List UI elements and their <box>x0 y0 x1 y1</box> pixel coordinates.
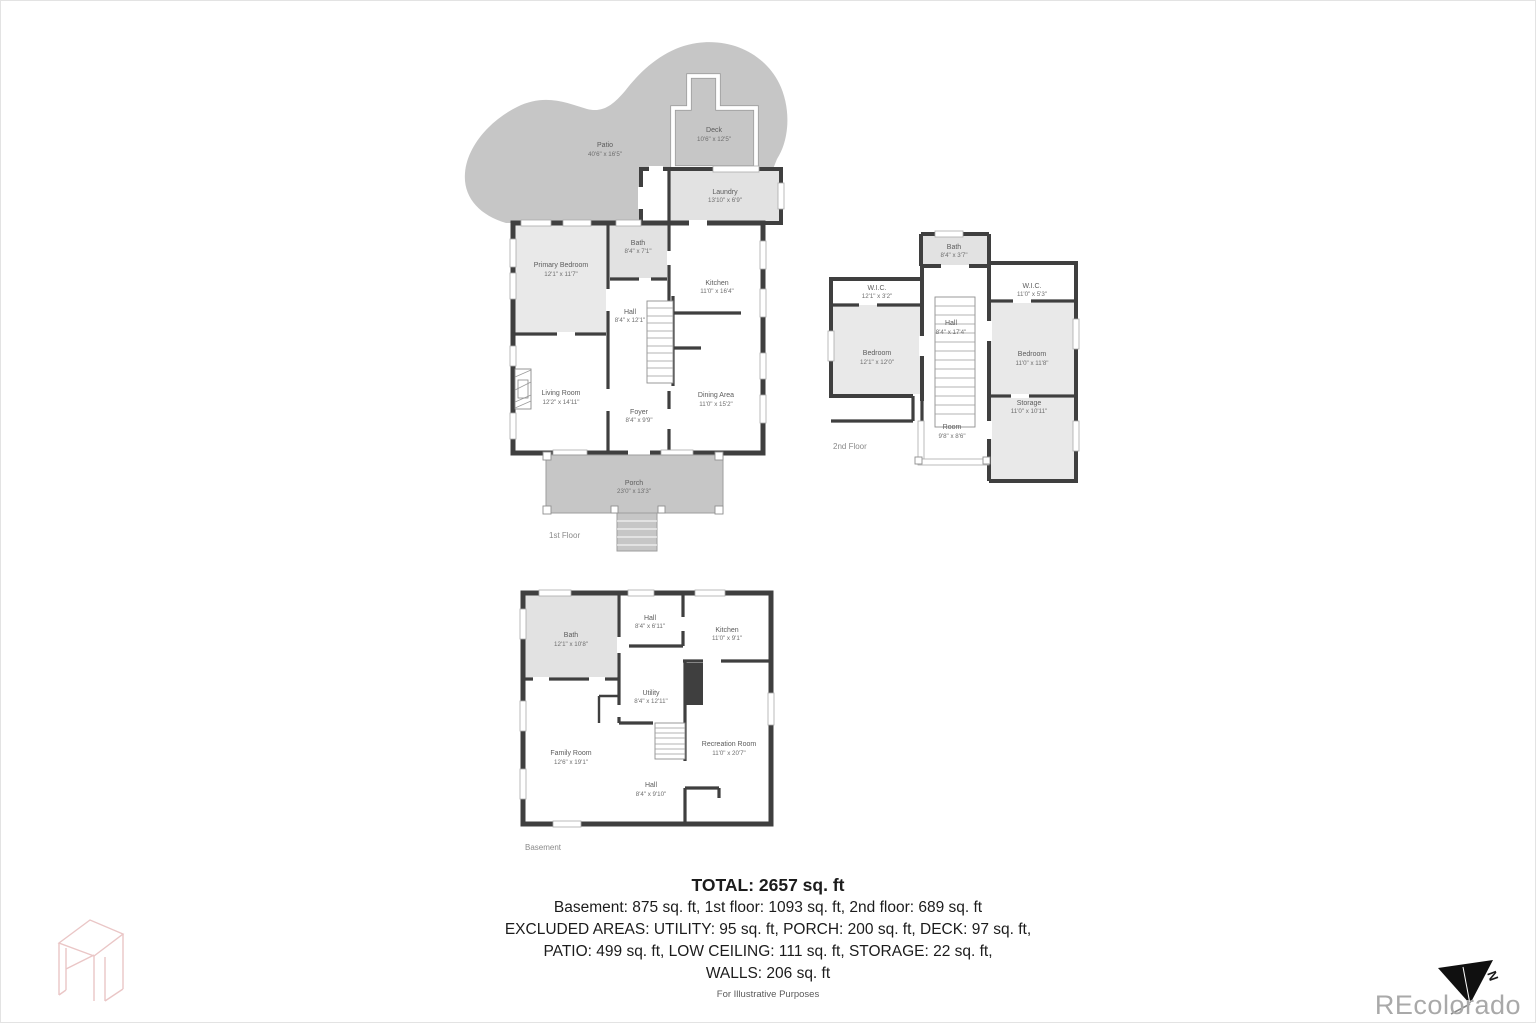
room-dims-hall-basement-top: 8'4" x 6'11" <box>635 623 665 630</box>
room-dims-foyer: 8'4" x 9'9" <box>625 417 652 424</box>
room-dims-kitchen1: 11'0" x 16'4" <box>700 288 733 295</box>
first-floor-stairs <box>647 301 673 383</box>
excluded-areas-text-1: EXCLUDED AREAS: UTILITY: 95 sq. ft, PORC… <box>1 921 1535 939</box>
room-name-bedroom-right: Bedroom <box>1018 351 1047 358</box>
room-name-bath-basement: Bath <box>564 632 579 639</box>
floorplan-image: Patio 40'6" x 16'5" Deck 10'6" x 12'5" L… <box>0 0 1536 1023</box>
second-floor-plan: Bath 8'4" x 3'7" W.I.C. 12'1" x 3'2" Bed… <box>828 231 1079 481</box>
room-dims-hall2: 8'4" x 17'4" <box>936 329 967 336</box>
second-floor-stairs <box>935 297 975 427</box>
room-dims-recreation-room: 11'0" x 20'7" <box>712 750 745 757</box>
room-dims-patio: 40'6" x 16'5" <box>588 151 622 158</box>
room-name-bedroom-left: Bedroom <box>863 350 892 357</box>
total-area-text: TOTAL: 2657 sq. ft <box>1 875 1535 896</box>
entry-corridor-floor <box>643 171 669 221</box>
room-name-deck: Deck <box>706 127 722 134</box>
room-name-hall-basement-top: Hall <box>644 615 657 622</box>
room-dims-utility: 8'4" x 12'11" <box>634 698 667 705</box>
room-dims-kitchen-basement: 11'0" x 9'1" <box>712 635 742 642</box>
fireplace <box>515 369 531 409</box>
room-dims-wic-left: 12'1" x 3'2" <box>862 293 893 300</box>
room-dims-dining-area: 11'0" x 15'2" <box>699 401 732 408</box>
room-name-patio: Patio <box>597 142 613 149</box>
room-name-wic-right: W.I.C. <box>1022 283 1041 290</box>
room-dims-family-room: 12'6" x 19'1" <box>554 759 588 766</box>
laundry-floor <box>669 171 779 221</box>
walls-area-text: WALLS: 206 sq. ft <box>1 965 1535 983</box>
room-dims-bath1: 8'4" x 7'1" <box>624 248 651 255</box>
room-name-hall1: Hall <box>624 309 637 316</box>
room-name-hall2: Hall <box>945 320 958 327</box>
room-dims-living-room: 12'2" x 14'11" <box>543 399 580 406</box>
chimney-block <box>685 663 703 705</box>
room-name-living-room: Living Room <box>542 390 581 397</box>
room-name-foyer: Foyer <box>630 409 649 416</box>
basement-stairs <box>655 723 685 759</box>
room-dims-hall-basement-bottom: 8'4" x 9'10" <box>636 791 667 798</box>
disclaimer-text: For Illustrative Purposes <box>1 989 1535 1000</box>
room-dims-bath2: 8'4" x 3'7" <box>940 252 967 259</box>
basement-label: Basement <box>525 843 562 852</box>
basement-plan: Bath 12'1" x 10'8" Hall 8'4" x 6'11" Kit… <box>520 590 774 852</box>
room-dims-hall1: 8'4" x 12'1" <box>615 317 646 324</box>
room-dims-porch: 23'0" x 13'3" <box>617 488 651 495</box>
room-name-bath1: Bath <box>631 240 646 247</box>
room-dims-laundry: 13'10" x 6'9" <box>708 197 742 204</box>
room-name-dining-area: Dining Area <box>698 392 734 399</box>
room-dims-room2: 9'8" x 8'6" <box>938 433 965 440</box>
second-floor-label: 2nd Floor <box>833 442 867 451</box>
room-name-primary-bedroom: Primary Bedroom <box>534 262 589 269</box>
excluded-areas-text-2: PATIO: 499 sq. ft, LOW CEILING: 111 sq. … <box>1 943 1535 961</box>
room-name-wic-left: W.I.C. <box>867 285 886 292</box>
room-name-storage: Storage <box>1017 400 1042 407</box>
room-name-utility: Utility <box>642 690 660 697</box>
room-name-recreation-room: Recreation Room <box>702 741 757 748</box>
first-floor-plan: Patio 40'6" x 16'5" Deck 10'6" x 12'5" L… <box>465 42 788 551</box>
room-dims-wic-right: 11'0" x 5'3" <box>1017 291 1047 298</box>
room-dims-storage: 11'0" x 10'11" <box>1011 408 1047 415</box>
room-name-kitchen1: Kitchen <box>705 280 728 287</box>
room-name-hall-basement-bottom: Hall <box>645 782 658 789</box>
room-dims-bath-basement: 12'1" x 10'8" <box>554 641 588 648</box>
primary-bedroom-floor <box>515 225 606 332</box>
room-name-laundry: Laundry <box>712 189 738 196</box>
area-summary: TOTAL: 2657 sq. ft Basement: 875 sq. ft,… <box>1 875 1535 987</box>
floor-areas-text: Basement: 875 sq. ft, 1st floor: 1093 sq… <box>1 899 1535 917</box>
room-name-porch: Porch <box>625 480 643 487</box>
first-floor-label: 1st Floor <box>549 531 580 540</box>
room-dims-primary-bedroom: 12'1" x 11'7" <box>544 271 577 278</box>
room-name-kitchen-basement: Kitchen <box>715 627 738 634</box>
room-name-family-room: Family Room <box>550 750 591 757</box>
room-dims-deck: 10'6" x 12'5" <box>697 136 731 143</box>
bedroom-right-floor <box>991 303 1074 394</box>
recolorado-watermark: REcolorado <box>1375 990 1521 1021</box>
room-dims-bedroom-left: 12'1" x 12'0" <box>860 359 894 366</box>
floorplan-drawing: Patio 40'6" x 16'5" Deck 10'6" x 12'5" L… <box>1 1 1536 1023</box>
room-name-room2: Room <box>943 424 962 431</box>
room-name-bath2: Bath <box>947 244 962 251</box>
room-dims-bedroom-right: 11'0" x 11'8" <box>1015 360 1048 367</box>
